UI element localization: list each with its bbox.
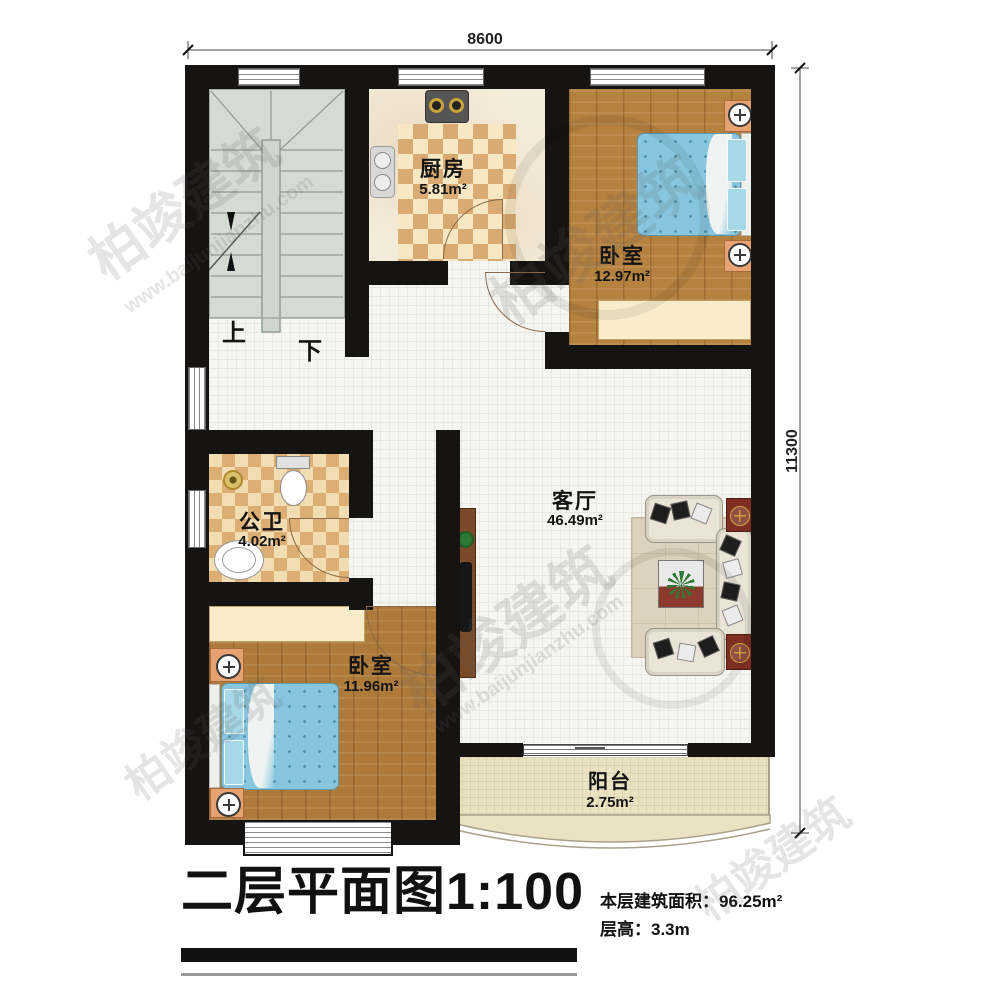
wall-bedroom2-north-left xyxy=(185,582,366,606)
window-left-hall xyxy=(188,367,206,430)
sliding-door-handle xyxy=(575,747,605,749)
toilet-tank xyxy=(276,456,310,469)
staircase-drawing xyxy=(0,0,1000,990)
wall-left xyxy=(185,65,209,845)
kitchen-label: 厨房 xyxy=(373,159,513,180)
side-table-lamp xyxy=(730,643,750,663)
sofa-pillow xyxy=(677,643,697,663)
bathroom-area: 4.02m² xyxy=(192,534,332,549)
wall-bedroom2-east xyxy=(436,430,460,845)
door-leaf-kitchen xyxy=(502,199,505,259)
floor-plan-canvas: 厨房 5.81m² 卧室 12.97m² 公卫 4.02m² 卧室 11.96m… xyxy=(0,0,1000,990)
window-top-kitchen xyxy=(398,68,484,86)
pillow xyxy=(224,689,244,734)
shower-head xyxy=(223,470,243,490)
living-label: 客厅 xyxy=(505,491,645,512)
wall-bathroom-east-upper xyxy=(349,430,373,518)
bed-sheet-fold xyxy=(248,684,274,788)
door-leaf-bedroom1 xyxy=(485,272,545,275)
stairs-up-label: 上 xyxy=(222,322,246,346)
floor-area-value: 96.25m² xyxy=(719,892,782,911)
title-underline-bar xyxy=(181,948,577,962)
headboard-bedroom2 xyxy=(209,684,220,788)
bedroom1-area: 12.97m² xyxy=(552,269,692,284)
floor-area-line: 本层建筑面积：96.25m² xyxy=(600,893,782,910)
stairs-down-label: 下 xyxy=(298,340,322,364)
sofa-pillow xyxy=(720,581,740,601)
pillow xyxy=(727,139,747,182)
wardrobe-bedroom2 xyxy=(209,606,365,642)
stove-burner-right xyxy=(449,98,464,113)
side-table-lamp xyxy=(730,506,750,526)
balcony-area: 2.75m² xyxy=(540,795,680,810)
window-bottom-bedroom2 xyxy=(243,820,393,856)
stove-burner-left xyxy=(429,98,444,113)
sofa-pillow xyxy=(670,500,690,520)
sliding-door-balcony xyxy=(523,744,688,756)
bathroom-label: 公卫 xyxy=(192,512,332,533)
pillow xyxy=(727,188,747,231)
plan-title: 二层平面图1:100 xyxy=(181,864,584,921)
bedroom2-label: 卧室 xyxy=(301,656,441,677)
wall-kitchen-south-left xyxy=(345,261,448,285)
toilet-bowl xyxy=(280,470,307,506)
bedroom1-label: 卧室 xyxy=(552,246,692,267)
plan-title-scale: 1:100 xyxy=(446,863,584,921)
dimension-height: 11300 xyxy=(784,416,802,486)
table-plant xyxy=(667,571,695,599)
title-underline-thin xyxy=(181,973,577,976)
nightstand-lamp xyxy=(216,792,241,817)
wall-bedroom1-south xyxy=(545,345,751,369)
wall-balcony-left xyxy=(436,743,523,757)
bedroom2-area: 11.96m² xyxy=(301,679,441,694)
wall-balcony-right xyxy=(688,743,775,757)
living-area: 46.49m² xyxy=(505,513,645,528)
wall-kitchen-bedroom1-upper xyxy=(545,65,569,272)
wardrobe-bedroom1 xyxy=(598,300,751,340)
wall-right xyxy=(751,65,775,757)
dimension-width: 8600 xyxy=(455,31,515,49)
nightstand-lamp xyxy=(728,103,752,127)
tv xyxy=(460,562,472,632)
floor-height-label: 层高： xyxy=(600,920,651,939)
wall-stairs-kitchen xyxy=(345,65,369,357)
door-leaf-bedroom2 xyxy=(366,606,436,609)
window-top-bedroom1 xyxy=(590,68,705,86)
pillow xyxy=(224,740,244,785)
balcony-label: 阳台 xyxy=(540,772,680,792)
window-top-stairs xyxy=(238,68,300,86)
nightstand-lamp xyxy=(216,654,241,679)
nightstand-lamp xyxy=(728,243,752,267)
floor-height-line: 层高：3.3m xyxy=(600,921,690,938)
floor-height-value: 3.3m xyxy=(651,920,690,939)
plan-title-text: 二层平面图 xyxy=(181,863,446,921)
wall-bathroom-north xyxy=(185,430,373,454)
kitchen-area: 5.81m² xyxy=(373,182,513,197)
floor-area-label: 本层建筑面积： xyxy=(600,892,719,911)
bathroom-sink-basin xyxy=(222,547,256,573)
